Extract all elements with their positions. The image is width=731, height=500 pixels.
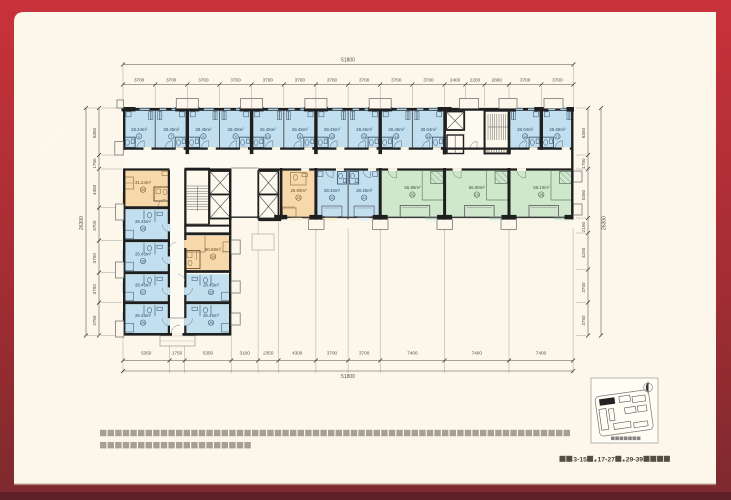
svg-text:3700: 3700 <box>92 220 97 231</box>
svg-text:56.89m²: 56.89m² <box>469 185 486 190</box>
svg-text:5350: 5350 <box>203 351 214 356</box>
svg-text:3700: 3700 <box>327 77 338 82</box>
svg-text:28.04m²: 28.04m² <box>420 127 437 132</box>
svg-text:3700: 3700 <box>359 351 370 356</box>
svg-text:2400: 2400 <box>450 77 461 82</box>
svg-text:28.04m²: 28.04m² <box>517 127 534 132</box>
svg-text:3-15: 3-15 <box>573 456 587 463</box>
svg-text:3700: 3700 <box>92 253 97 264</box>
svg-text:28.45m²: 28.45m² <box>163 127 180 132</box>
svg-text:11: 11 <box>298 135 302 139</box>
svg-text:80.69m²: 80.69m² <box>205 247 222 252</box>
svg-text:30: 30 <box>141 188 145 192</box>
svg-text:56.89m²: 56.89m² <box>404 185 421 190</box>
svg-text:4250: 4250 <box>581 247 586 258</box>
svg-text:24: 24 <box>211 255 215 259</box>
svg-text:9: 9 <box>235 135 237 139</box>
svg-text:2350: 2350 <box>263 351 274 356</box>
svg-text:8: 8 <box>202 135 204 139</box>
svg-text:7400: 7400 <box>407 351 418 356</box>
svg-text:4300: 4300 <box>292 351 303 356</box>
svg-text:28.45m²: 28.45m² <box>324 188 341 193</box>
svg-text:26: 26 <box>209 321 213 325</box>
svg-text:5350: 5350 <box>92 127 97 138</box>
svg-text:7: 7 <box>170 135 172 139</box>
svg-text:26300: 26300 <box>79 216 85 230</box>
svg-text:28.45m²: 28.45m² <box>260 127 277 132</box>
svg-text:17-27: 17-27 <box>598 456 616 463</box>
svg-text:2800: 2800 <box>492 77 503 82</box>
svg-text:3700: 3700 <box>391 77 402 82</box>
svg-text:1750: 1750 <box>172 351 183 356</box>
svg-text:28.45m²: 28.45m² <box>292 127 309 132</box>
svg-text:3700: 3700 <box>552 77 563 82</box>
svg-text:31.24m²: 31.24m² <box>135 180 152 185</box>
svg-text:51800: 51800 <box>341 58 355 64</box>
svg-text:14: 14 <box>394 135 398 139</box>
svg-text:2150: 2150 <box>581 221 586 232</box>
svg-text:26.45m²: 26.45m² <box>203 313 220 318</box>
svg-text:12: 12 <box>330 135 334 139</box>
svg-text:28.45m²: 28.45m² <box>228 127 245 132</box>
svg-text:1750: 1750 <box>581 158 586 169</box>
svg-text:26.45m²: 26.45m² <box>135 313 152 318</box>
svg-text:16: 16 <box>523 135 527 139</box>
svg-text:3700: 3700 <box>423 77 434 82</box>
svg-text:26.80m²: 26.80m² <box>290 188 307 193</box>
svg-text:20: 20 <box>411 193 415 197</box>
svg-text:51800: 51800 <box>341 374 355 380</box>
svg-text:6350: 6350 <box>581 127 586 138</box>
svg-text:29-39: 29-39 <box>626 456 644 463</box>
svg-text:10: 10 <box>266 135 270 139</box>
svg-text:2200: 2200 <box>470 77 481 82</box>
svg-text:21: 21 <box>362 196 366 200</box>
svg-text:3700: 3700 <box>520 77 531 82</box>
svg-text:3700: 3700 <box>230 77 241 82</box>
svg-text:58.10m²: 58.10m² <box>533 185 550 190</box>
svg-text:7400: 7400 <box>536 351 547 356</box>
svg-text:3750: 3750 <box>92 315 97 326</box>
svg-text:3700: 3700 <box>92 284 97 295</box>
svg-text:15: 15 <box>427 135 431 139</box>
svg-text:18: 18 <box>539 193 543 197</box>
svg-text:3700: 3700 <box>166 77 177 82</box>
svg-text:3700: 3700 <box>198 77 209 82</box>
svg-text:26300: 26300 <box>602 216 608 230</box>
svg-text:7400: 7400 <box>472 351 483 356</box>
svg-text:3700: 3700 <box>263 77 274 82</box>
svg-text:5350: 5350 <box>581 189 586 200</box>
svg-text:22: 22 <box>330 196 334 200</box>
svg-text:3700: 3700 <box>581 282 586 293</box>
svg-text:23: 23 <box>297 196 301 200</box>
svg-text:28.45m²: 28.45m² <box>195 127 212 132</box>
svg-text:28.45m²: 28.45m² <box>203 282 220 287</box>
svg-text:26.45m²: 26.45m² <box>135 251 152 256</box>
svg-text:1750: 1750 <box>92 158 97 169</box>
svg-text:13: 13 <box>362 135 366 139</box>
svg-text:28.45m²: 28.45m² <box>135 282 152 287</box>
svg-text:3700: 3700 <box>134 77 145 82</box>
svg-text:29: 29 <box>141 227 145 231</box>
svg-text:26.45m²: 26.45m² <box>135 219 152 224</box>
svg-text:28.45m²: 28.45m² <box>324 127 341 132</box>
svg-text:17: 17 <box>556 135 560 139</box>
svg-text:3700: 3700 <box>295 77 306 82</box>
svg-text:3700: 3700 <box>359 77 370 82</box>
svg-text:26: 26 <box>141 321 145 325</box>
svg-text:29.65m²: 29.65m² <box>549 127 566 132</box>
svg-text:5350: 5350 <box>141 351 152 356</box>
svg-text:6: 6 <box>138 135 140 139</box>
svg-text:28: 28 <box>141 259 145 263</box>
svg-text:27: 27 <box>141 290 145 294</box>
svg-text:3700: 3700 <box>327 351 338 356</box>
svg-text:28.24m²: 28.24m² <box>131 127 148 132</box>
svg-text:25: 25 <box>209 290 213 294</box>
svg-text:3100: 3100 <box>240 351 251 356</box>
svg-text:4350: 4350 <box>92 184 97 195</box>
svg-text:28.45m²: 28.45m² <box>356 127 373 132</box>
svg-text:19: 19 <box>475 193 479 197</box>
svg-text:3750: 3750 <box>581 315 586 326</box>
svg-text:28.45m²: 28.45m² <box>356 188 373 193</box>
svg-text:28.45m²: 28.45m² <box>388 127 405 132</box>
